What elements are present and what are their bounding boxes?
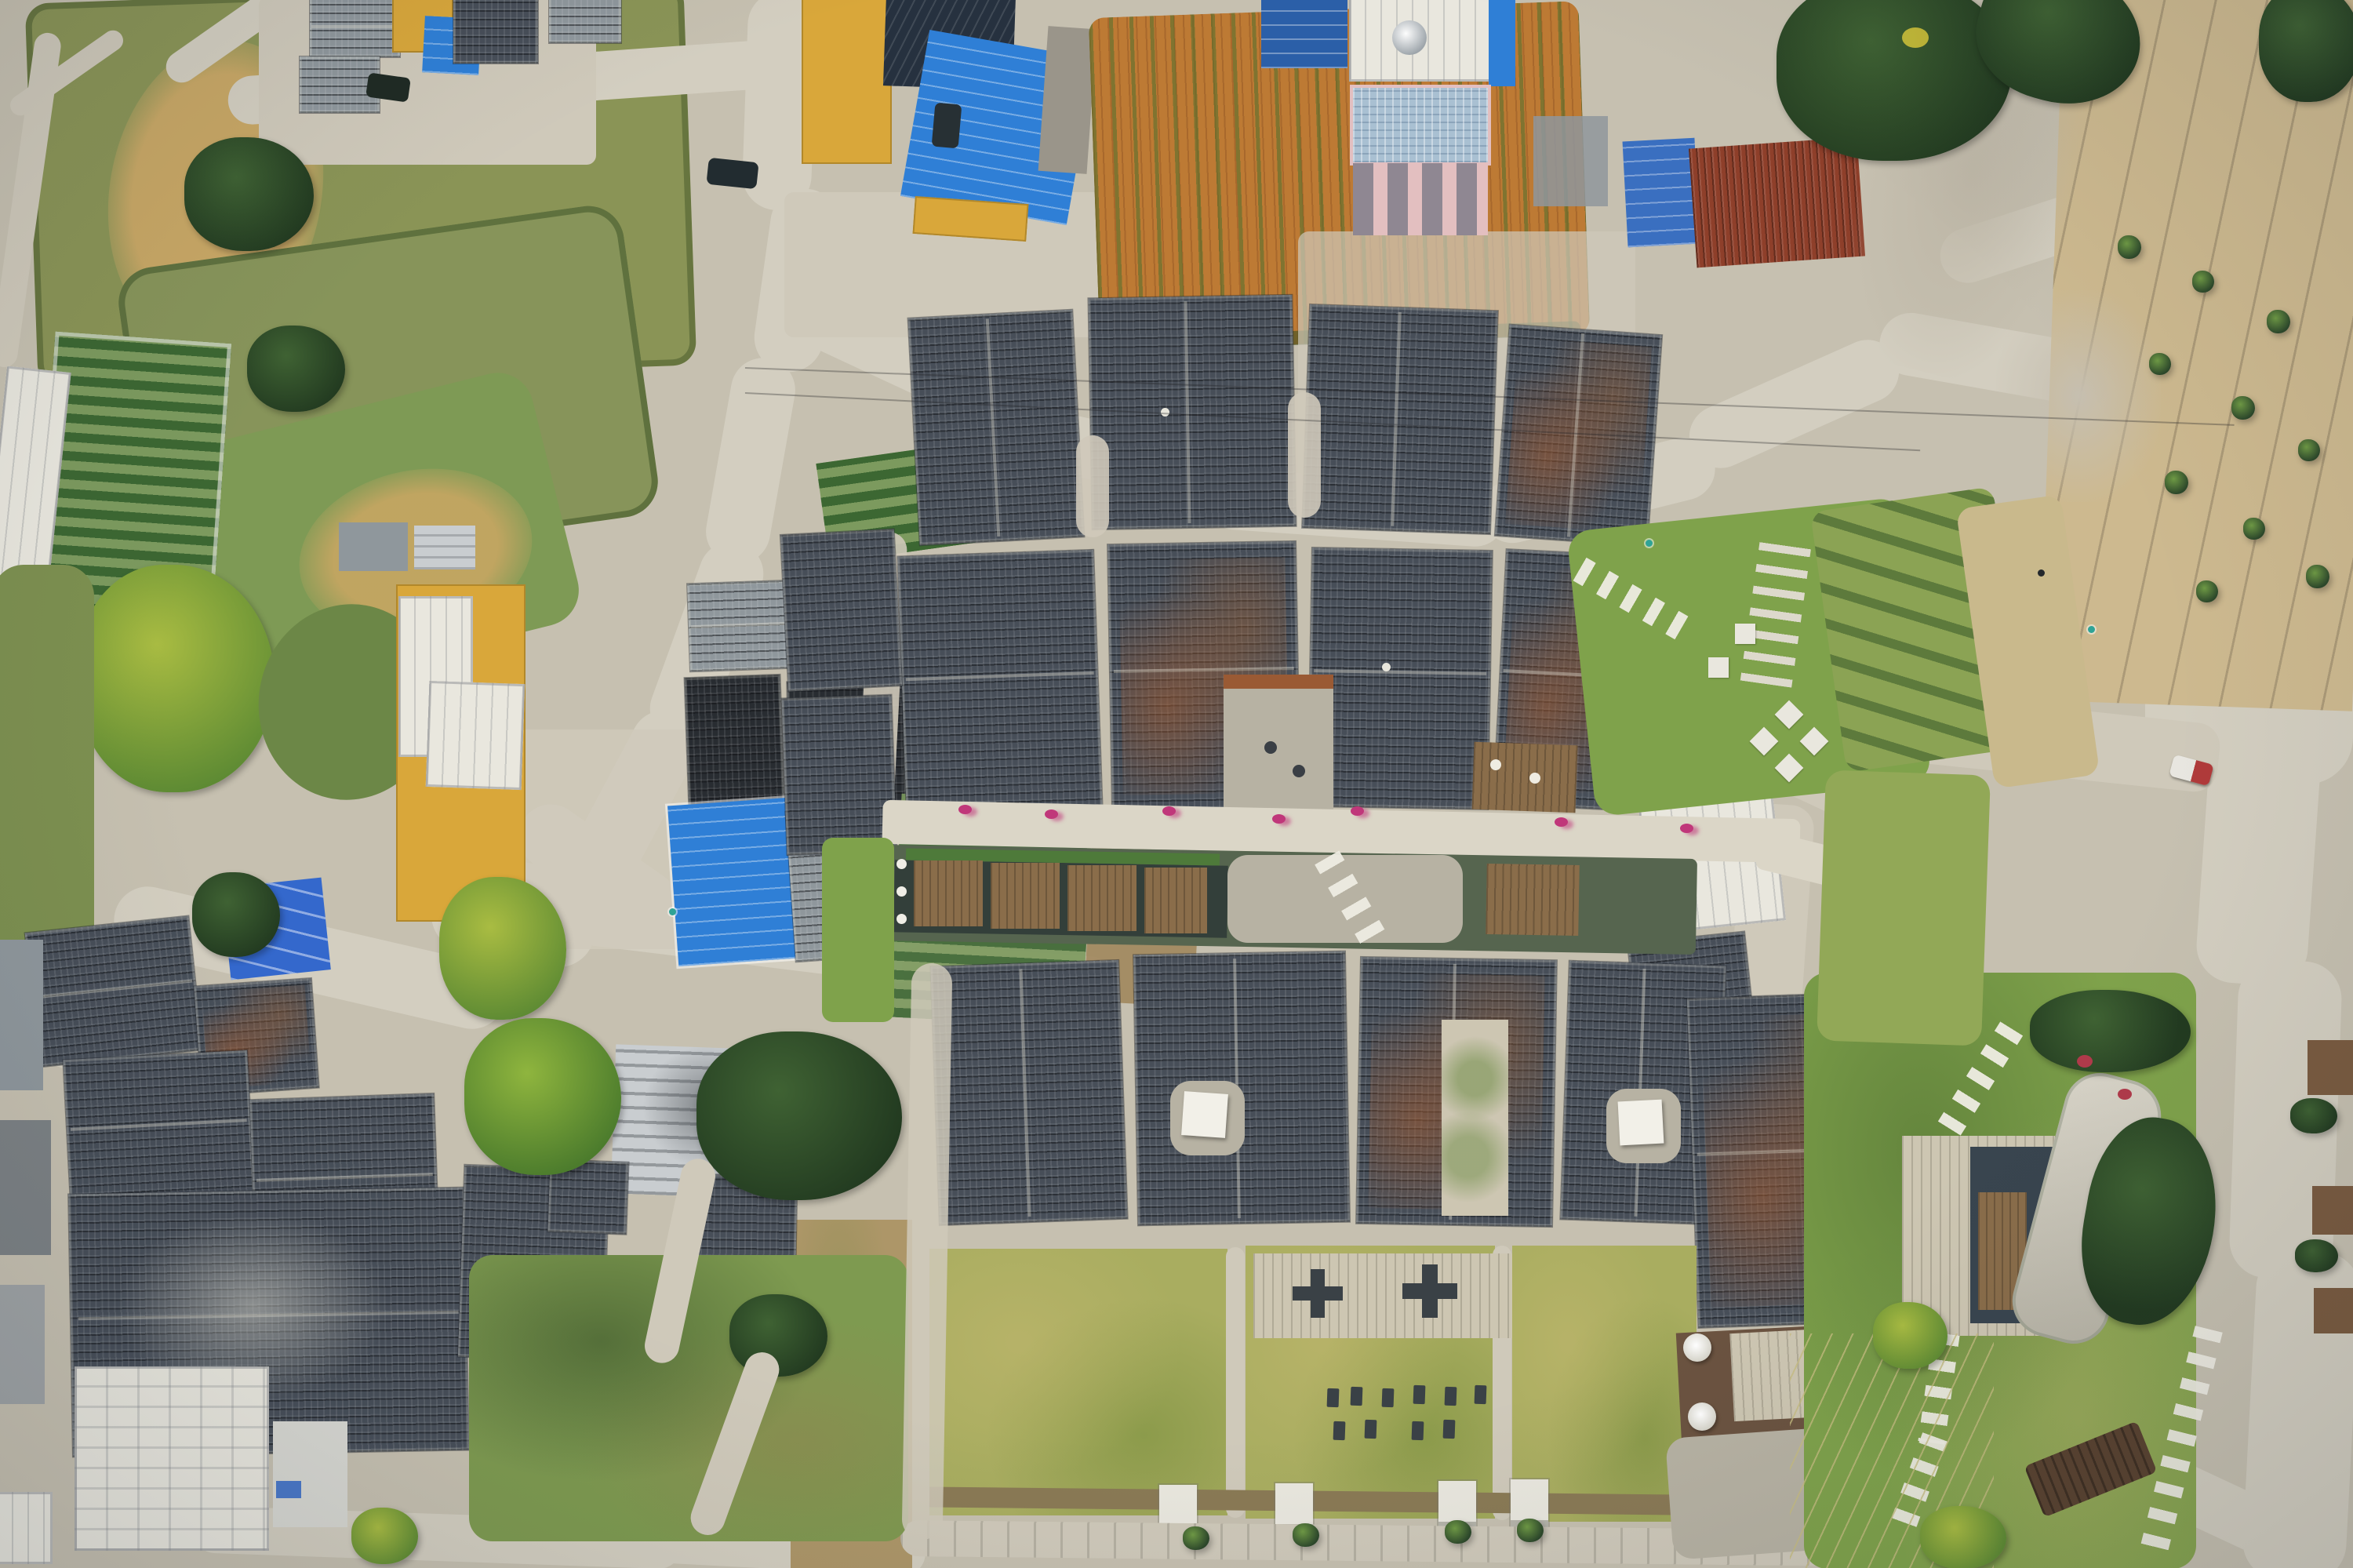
courtyard-slit-2 xyxy=(1288,392,1321,518)
orchard-tree-6 xyxy=(2298,439,2320,461)
canal-deck-4 xyxy=(1144,868,1207,933)
trees-topleft xyxy=(184,137,314,251)
lounge-chair-7 xyxy=(1333,1421,1346,1441)
resort-roof-b1 xyxy=(897,550,1102,816)
trees-topright-corner xyxy=(2259,0,2353,102)
orchard-tree-4 xyxy=(2149,353,2171,375)
hedge-flower-red2 xyxy=(2118,1089,2132,1100)
bougainvillea-7 xyxy=(1680,824,1693,833)
slab-scatter-1 xyxy=(1708,657,1729,678)
canal-west-grass xyxy=(822,838,894,1022)
ac-unit-3 xyxy=(896,914,907,924)
orchard-tree-10 xyxy=(2196,580,2218,602)
lounge-chair-5 xyxy=(1445,1387,1457,1406)
shed-gray-a xyxy=(339,522,408,571)
ac-unit-2 xyxy=(896,886,907,897)
bldg-rust-roof xyxy=(1689,137,1865,268)
edge-bldg-3 xyxy=(0,1285,45,1404)
courtyard-winding-garden xyxy=(1442,1020,1508,1216)
lounge-chair-8 xyxy=(1365,1420,1377,1439)
village-blue-speck xyxy=(276,1481,301,1498)
banana-grove xyxy=(78,565,275,792)
bougainvillea-2 xyxy=(1045,809,1058,819)
pad-hedge-2 xyxy=(2295,1239,2338,1272)
lower-roof-c2 xyxy=(1133,951,1350,1226)
palm-bottomleft xyxy=(351,1508,418,1564)
vehicle-small xyxy=(932,103,962,149)
tree-yellowgreen xyxy=(439,877,566,1020)
bougainvillea-4 xyxy=(1272,814,1286,824)
resort-roof-a2 xyxy=(1088,295,1296,529)
edge-bldg-white xyxy=(0,1492,53,1564)
wall-shrub-2 xyxy=(1293,1523,1319,1547)
edge-bldg-2 xyxy=(0,1120,51,1255)
lounge-chair-10 xyxy=(1443,1420,1456,1439)
bougainvillea-5 xyxy=(1351,806,1364,816)
rocky-outcrop2 xyxy=(1996,290,2161,502)
stage-cross-seat-1 xyxy=(1293,1269,1343,1318)
resort-roof-a1 xyxy=(908,310,1085,546)
hedge-flower-red1 xyxy=(2077,1055,2093,1068)
village-roof-a xyxy=(687,580,794,672)
ac-unit-1 xyxy=(896,859,907,869)
resort-roof-left-b xyxy=(782,695,897,856)
slab-scatter-2 xyxy=(1735,624,1755,644)
lounge-chair-9 xyxy=(1412,1421,1424,1441)
sheds-gray-tr xyxy=(1533,116,1608,206)
house-roof-dark-top xyxy=(453,0,538,64)
edge-bldg-1 xyxy=(0,940,43,1090)
patio-umbrella-2 xyxy=(1688,1402,1716,1431)
street-lamp-1 xyxy=(669,908,676,915)
house-roof-top3 xyxy=(549,0,621,43)
courtyard-table-1 xyxy=(1264,741,1277,754)
house-roof-gray1 xyxy=(310,0,400,57)
grass-strip-road xyxy=(1817,769,1991,1046)
resort-roof-b3 xyxy=(1307,548,1493,809)
lower-roof-c1 xyxy=(930,960,1127,1225)
brush-left-low xyxy=(0,565,94,988)
round-table-1 xyxy=(1490,759,1501,770)
village-whitebldg xyxy=(75,1366,269,1551)
tree-dark-mass xyxy=(696,1031,902,1200)
shed-gray-b xyxy=(414,526,475,569)
skylight-dot-2 xyxy=(1382,663,1391,671)
bldg-yellow-white-roofB xyxy=(426,681,526,790)
courtyard-garden-b-rust xyxy=(1224,675,1333,689)
street-lamp-3 xyxy=(1646,540,1653,547)
bldg-yellow-wall-strip xyxy=(913,196,1029,242)
orchard-tree-9 xyxy=(2306,565,2329,588)
orchard-tree-8 xyxy=(2243,518,2265,540)
stage-cross-seat-2 xyxy=(1402,1264,1457,1318)
lounge-chair-4 xyxy=(1413,1385,1426,1405)
bougainvillea-1 xyxy=(958,805,972,814)
canal-deck-3 xyxy=(1067,865,1136,931)
tree-by-tarp xyxy=(192,872,280,957)
village-roof-v1 xyxy=(25,915,203,1067)
courtyard-garden-b xyxy=(1224,675,1333,812)
lounge-chair-2 xyxy=(1351,1387,1363,1406)
wall-shrub-1 xyxy=(1183,1526,1209,1550)
orchard-tree-1 xyxy=(2118,235,2141,259)
lounge-chair-1 xyxy=(1327,1388,1340,1408)
house-blue-metal xyxy=(667,798,798,966)
aerial-photo xyxy=(0,0,2353,1568)
deck-round-tables xyxy=(1472,742,1578,813)
lounge-chair-3 xyxy=(1382,1388,1395,1408)
wall-shrub-4 xyxy=(1517,1519,1544,1542)
lawn-path-1 xyxy=(1226,1247,1245,1518)
canal-deck-1 xyxy=(914,860,983,926)
lawn-west xyxy=(929,1249,1227,1515)
orchard-tree-5 xyxy=(2231,396,2255,420)
pad-hedge-1 xyxy=(2290,1098,2337,1133)
bldg-yellow-top-center xyxy=(802,0,892,164)
hedge-dense-1 xyxy=(2030,990,2191,1072)
bougainvillea-6 xyxy=(1555,817,1568,827)
orchard-tree-2 xyxy=(2192,271,2214,293)
parking-pad-2 xyxy=(2312,1186,2353,1235)
courtyard-slit-1 xyxy=(1076,435,1109,537)
round-table-2 xyxy=(1529,773,1540,784)
white-canopy-2 xyxy=(1618,1100,1664,1146)
pedestrian-dot xyxy=(2038,569,2045,577)
bldg-pink-facade xyxy=(1353,163,1488,235)
palm-clump-1 xyxy=(1873,1302,1947,1369)
scaffold-shed xyxy=(1038,26,1097,174)
water-tank xyxy=(1392,20,1427,55)
trees-topleft2 xyxy=(247,326,345,412)
bougainvillea-3 xyxy=(1162,806,1176,816)
wall-shrub-3 xyxy=(1445,1520,1471,1544)
parking-pad-1 xyxy=(2308,1040,2353,1095)
white-canopy-1 xyxy=(1181,1091,1228,1138)
resort-roof-a3 xyxy=(1302,304,1498,534)
village-white-annex xyxy=(273,1421,347,1527)
patio-umbrella-1 xyxy=(1683,1333,1711,1362)
bldg-darkblue-roof-tr xyxy=(1261,0,1347,68)
parking-pad-3 xyxy=(2314,1288,2353,1333)
canal-deck-5 xyxy=(1486,864,1580,936)
bldg-white-roof-blue-trim xyxy=(1489,0,1515,86)
village-roof-v3 xyxy=(63,1050,254,1205)
suv-dark xyxy=(706,158,758,190)
orchard-tree-3 xyxy=(2267,310,2290,333)
lounge-chair-6 xyxy=(1475,1385,1487,1405)
canal-deck-2 xyxy=(991,863,1060,929)
street-lamp-2 xyxy=(2088,626,2095,633)
resort-roof-left-a xyxy=(780,529,902,691)
bldg-pink-mosaic-roof xyxy=(1353,88,1488,162)
courtyard-table-2 xyxy=(1293,765,1305,777)
orchard-tree-7 xyxy=(2165,471,2188,494)
yellow-bloom xyxy=(1902,27,1929,48)
tree-bright-village xyxy=(464,1018,621,1175)
palm-clump-2 xyxy=(1920,1506,2006,1568)
